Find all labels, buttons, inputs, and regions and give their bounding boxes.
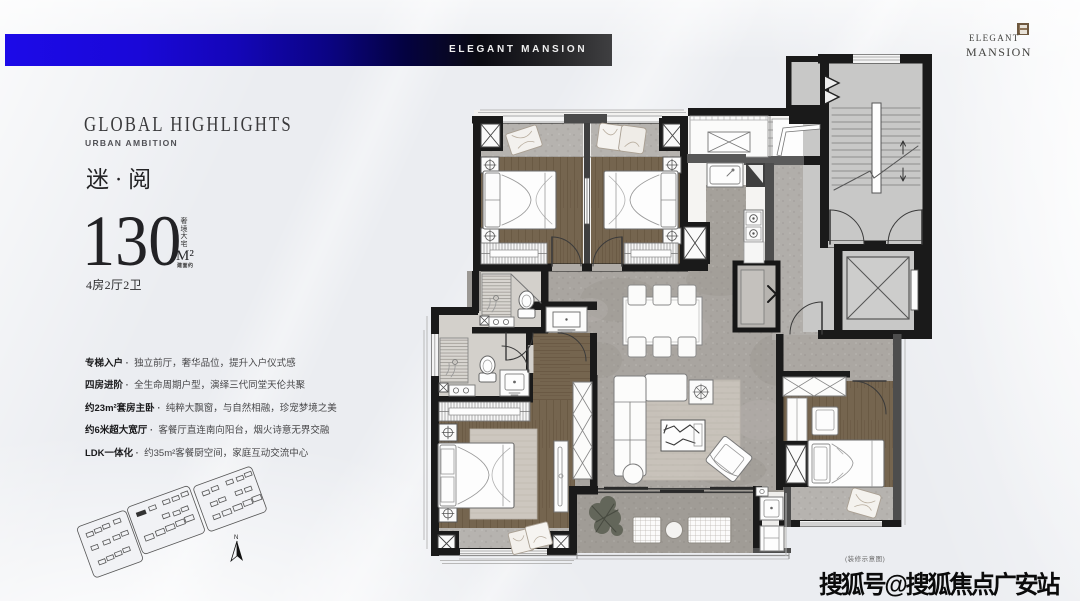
svg-text:N: N xyxy=(234,535,238,541)
